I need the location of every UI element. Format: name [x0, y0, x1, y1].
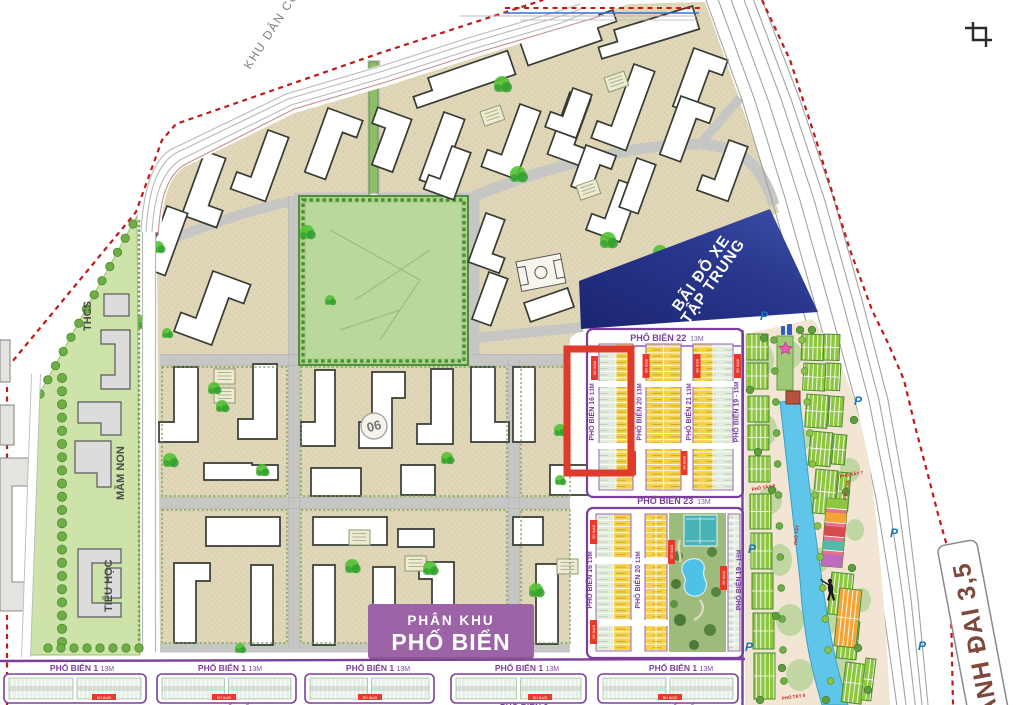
svg-text:P: P — [745, 640, 754, 654]
svg-text:P: P — [760, 309, 769, 323]
svg-text:P: P — [890, 526, 899, 540]
svg-text:SH 8x20: SH 8x20 — [97, 696, 112, 700]
svg-text:SH 8x20: SH 8x20 — [217, 696, 232, 700]
svg-text:SH 8x18: SH 8x18 — [722, 571, 726, 585]
svg-text:THCS: THCS — [82, 301, 94, 331]
svg-text:PHỐ BIỂN: PHỐ BIỂN — [391, 628, 510, 655]
svg-text:SH 8x18: SH 8x18 — [593, 361, 597, 375]
svg-text:SH 8x18: SH 8x18 — [683, 456, 687, 470]
svg-text:SH 8x18: SH 8x18 — [670, 545, 674, 559]
svg-text:SH 8x18: SH 8x18 — [736, 359, 740, 373]
svg-text:SH 8x20: SH 8x20 — [363, 696, 378, 700]
svg-text:SH 8x20: SH 8x20 — [663, 696, 678, 700]
svg-text:SH 8x18: SH 8x18 — [592, 625, 596, 639]
svg-text:P: P — [854, 394, 863, 408]
svg-text:MẦM NON: MẦM NON — [114, 446, 127, 500]
svg-text:P: P — [918, 639, 927, 653]
svg-text:PHỐ BIỂN 2: PHỐ BIỂN 2 — [500, 701, 548, 705]
svg-text:SH 8x18: SH 8x18 — [592, 525, 596, 539]
svg-text:PHÂN KHU: PHÂN KHU — [407, 613, 494, 628]
svg-text:TIỂU HỌC: TIỂU HỌC — [102, 559, 115, 612]
svg-text:SH 8x18: SH 8x18 — [645, 359, 649, 373]
svg-text:SH 8x18: SH 8x18 — [696, 359, 700, 373]
svg-text:SH 8x20: SH 8x20 — [533, 696, 548, 700]
svg-text:P: P — [748, 542, 757, 556]
